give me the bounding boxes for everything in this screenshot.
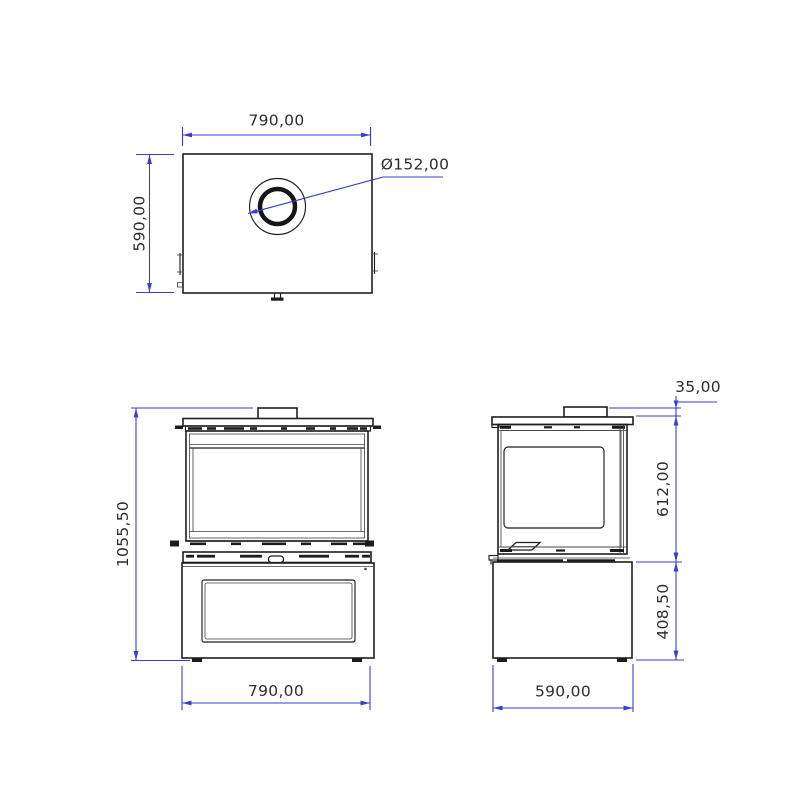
dim-side-depth: 590,00 <box>493 664 633 712</box>
bottom-bracket-detail <box>271 293 284 301</box>
dim-side-collar-label: 35,00 <box>675 378 721 396</box>
dim-top-depth: 590,00 <box>131 155 175 293</box>
firebox-side-outline <box>498 425 627 555</box>
dim-front-width-label: 790,00 <box>248 682 304 700</box>
technical-drawing-page: 790,00 590,00 Ø152,00 <box>0 0 800 800</box>
dim-top-width-label: 790,00 <box>248 112 304 130</box>
dim-flue-diameter-label: Ø152,00 <box>381 156 450 174</box>
dim-side-collar: 35,00 <box>609 378 721 416</box>
flue-collar-side <box>564 407 607 417</box>
vent-slots-top <box>188 427 367 430</box>
firebox-front-inner <box>190 434 365 538</box>
left-hook-bottom <box>170 541 179 547</box>
right-hook-bottom <box>365 541 374 547</box>
top-plate-front <box>183 419 373 427</box>
right-foot-side <box>617 658 627 662</box>
dim-top-width: 790,00 <box>183 112 371 147</box>
stove-technical-drawing: 790,00 590,00 Ø152,00 <box>0 0 800 800</box>
front-view <box>170 408 381 662</box>
right-foot-front <box>352 658 362 662</box>
dim-front-height-label: 1055,50 <box>114 501 132 567</box>
screw-dot <box>364 568 367 571</box>
dim-side-depth-label: 590,00 <box>535 683 591 701</box>
left-hook-top <box>175 426 183 430</box>
side-view <box>489 407 633 662</box>
flue-collar-front <box>258 408 297 419</box>
left-foot-front <box>192 658 202 662</box>
base-side-outline <box>493 562 632 658</box>
dim-side-base-label: 408,50 <box>654 583 672 639</box>
door-handle <box>269 556 284 563</box>
side-glass-window <box>504 447 604 528</box>
vent-slots-bottom <box>190 543 365 546</box>
right-hook-top <box>373 426 381 430</box>
dim-top-depth-label: 590,00 <box>131 195 149 251</box>
side-top-slots <box>500 426 625 429</box>
top-plate-side <box>492 417 633 425</box>
base-front-outline <box>182 563 374 658</box>
dim-side-firebox: 612,00 <box>636 416 682 562</box>
top-view <box>177 154 378 301</box>
dim-front-width: 790,00 <box>182 666 370 710</box>
dim-side-firebox-label: 612,00 <box>654 461 672 517</box>
dim-side-base: 408,50 <box>636 562 684 660</box>
left-foot-side <box>497 658 507 662</box>
slot-mark <box>271 298 284 301</box>
